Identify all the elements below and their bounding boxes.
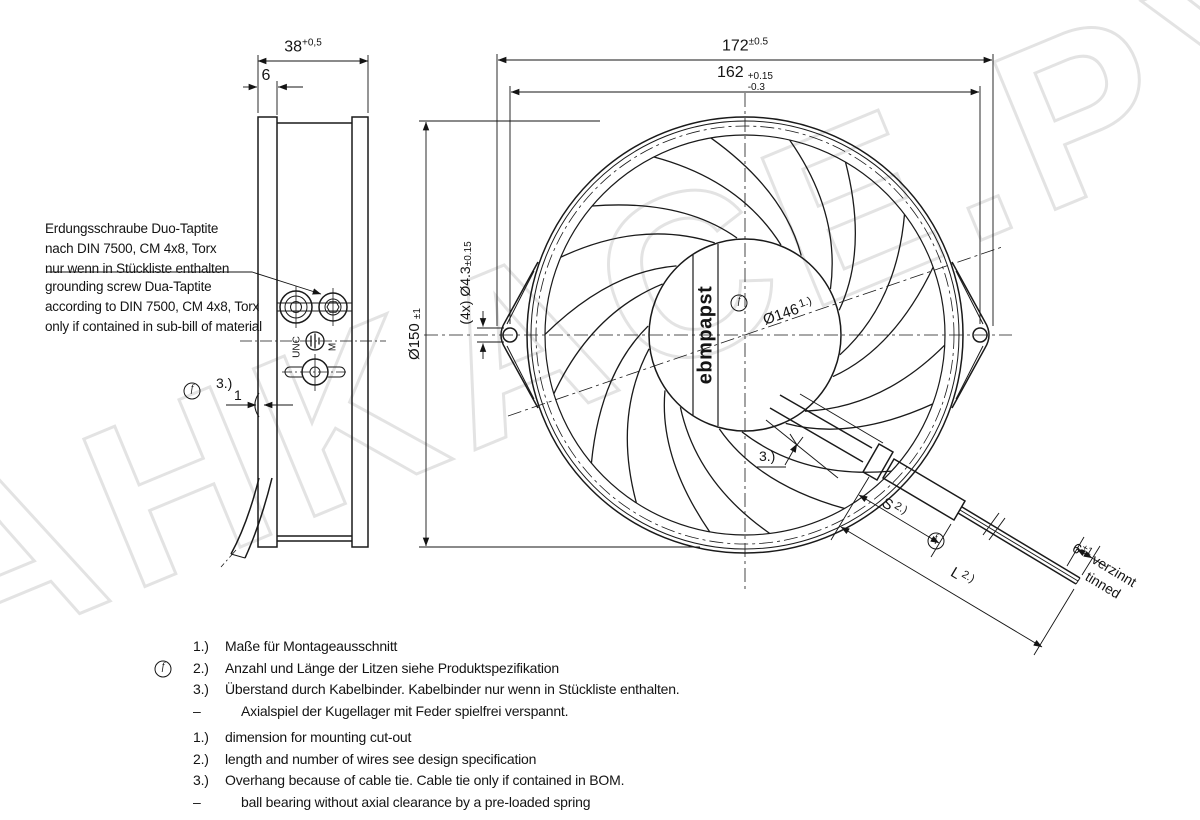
side-lead-wire: [221, 393, 272, 567]
fan-blade: [592, 157, 781, 245]
dim-150-label: Ø150 ±1: [407, 308, 424, 360]
f-balloon-icon: f: [731, 295, 748, 312]
terminal-icon: [282, 354, 348, 391]
dim-1-label: 1: [234, 388, 242, 403]
side-view: [221, 117, 386, 567]
fan-blade: [513, 176, 714, 365]
dim-43-label: (4x) Ø4.3±0.15: [458, 241, 474, 324]
label-unc: UNC: [292, 336, 303, 358]
dim-38-label: 38+0,5: [284, 38, 322, 57]
technical-drawing-page: AHKACE.PY: [0, 0, 1200, 820]
grounding-note-de: Erdungsschraube Duo-Taptite nach DIN 750…: [45, 219, 229, 279]
torx-screw-icon: [319, 288, 347, 326]
tie-overhang: [790, 434, 803, 445]
grounding-note-en: grounding screw Dua-Taptite according to…: [45, 277, 262, 337]
label-m: M: [328, 343, 339, 351]
fan-blade: [807, 153, 926, 354]
ref-3-front-label: 3.): [759, 449, 775, 464]
f-balloon-icon: f: [155, 661, 172, 678]
front-view-dimensions: [477, 54, 1106, 655]
dim-162-label: 162+0.15-0.3: [717, 64, 773, 94]
fan-blade: [742, 367, 950, 514]
fan-blade: [686, 100, 887, 289]
front-view: [424, 93, 1080, 592]
ebmpapst-logo: ebmpapst: [695, 286, 718, 384]
impeller: [513, 100, 975, 556]
footnotes-english: 1.)dimension for mounting cut-out 2.)len…: [193, 727, 624, 813]
footnotes-german: 1.)Maße für Montageausschnitt 2.)Anzahl …: [193, 636, 680, 722]
f-balloon-icon: f: [184, 383, 201, 400]
dim-6-label: 6: [262, 67, 271, 85]
f-balloon-icon: f: [928, 533, 945, 550]
cable-assembly: [766, 394, 1080, 584]
grounding-screw-icon: [280, 286, 312, 328]
side-right-flange: [352, 117, 368, 547]
dim-172-label: 172±0.5: [722, 37, 768, 56]
ref-3-side-label: 3.): [216, 376, 232, 391]
